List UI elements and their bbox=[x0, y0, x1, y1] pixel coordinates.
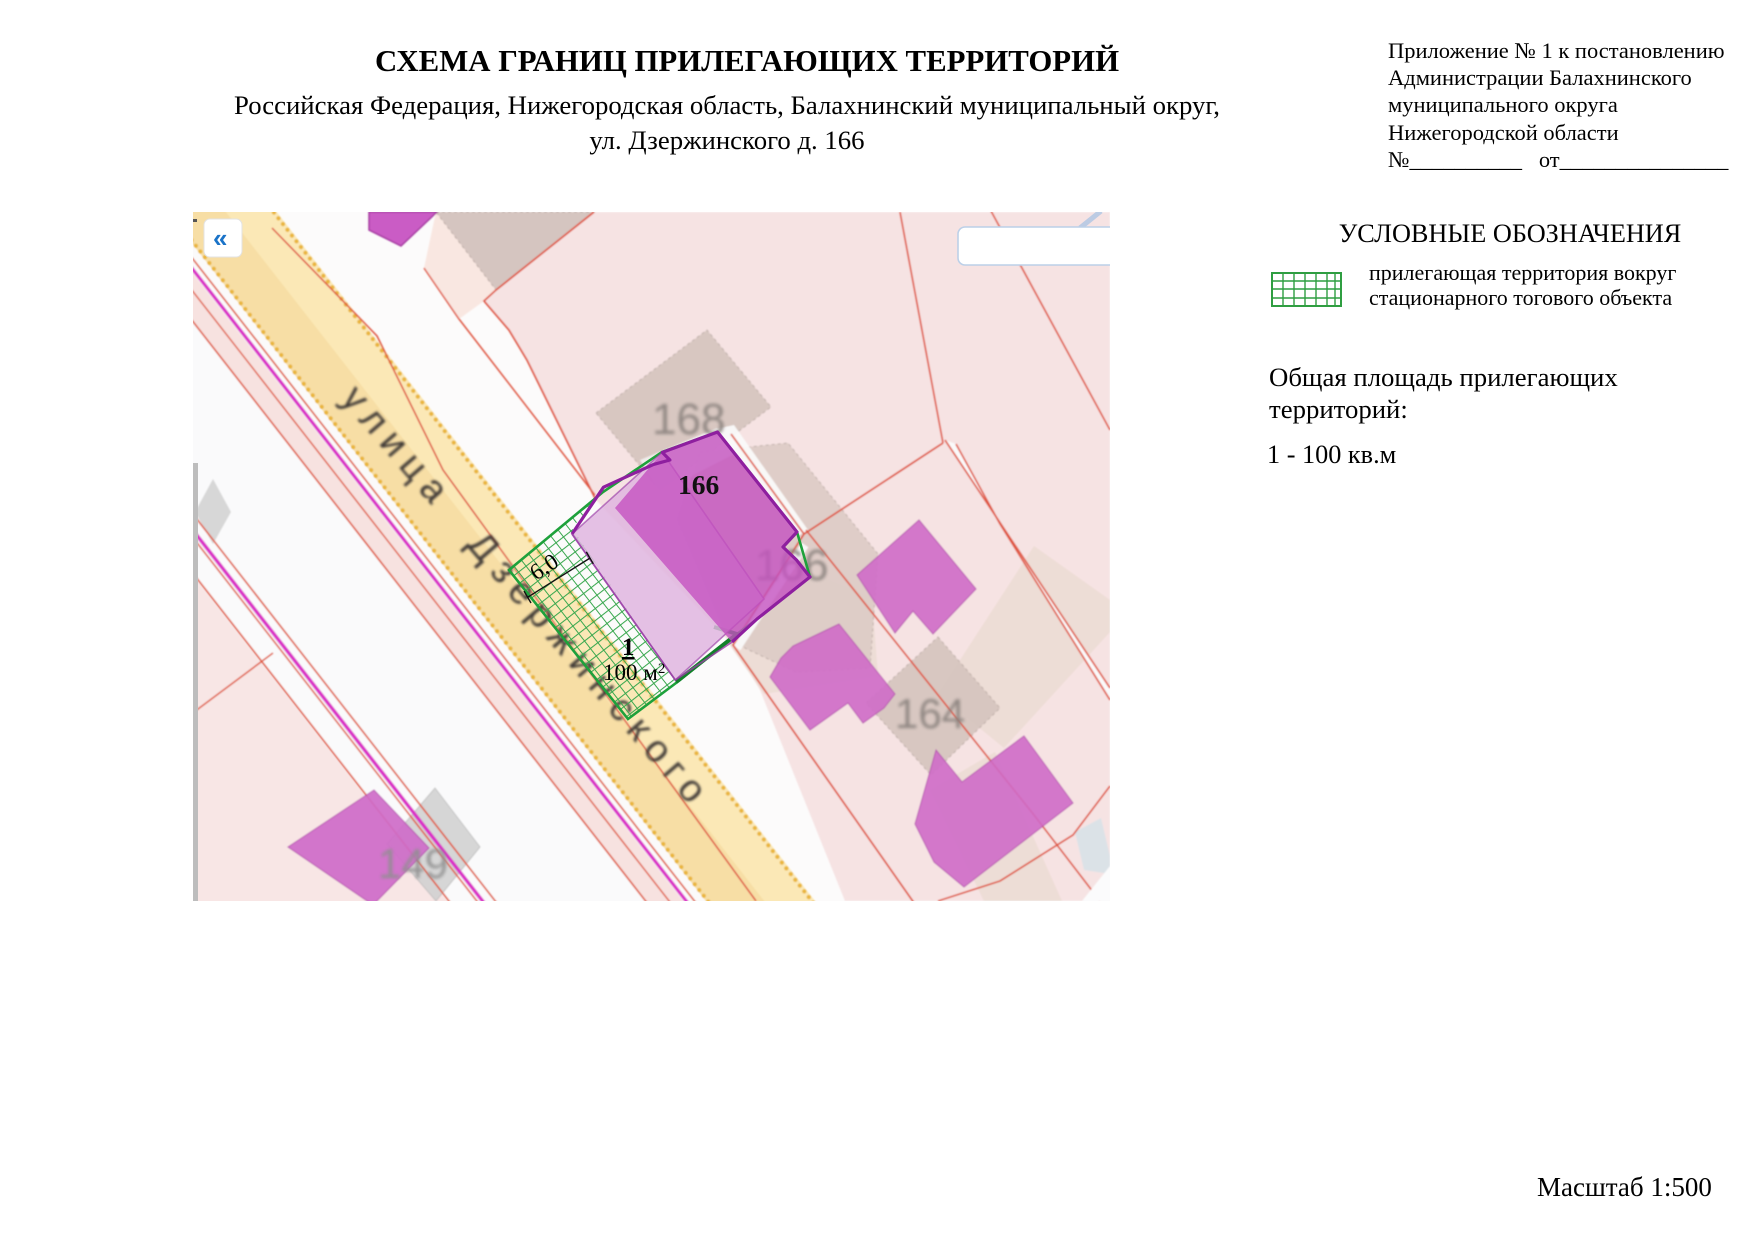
svg-text:1: 1 bbox=[622, 634, 635, 661]
svg-text:164: 164 bbox=[895, 690, 965, 737]
svg-text:166: 166 bbox=[678, 469, 719, 500]
svg-text:100 м2: 100 м2 bbox=[603, 660, 665, 685]
svg-text:«: « bbox=[213, 223, 227, 253]
svg-text:149: 149 bbox=[378, 840, 448, 887]
